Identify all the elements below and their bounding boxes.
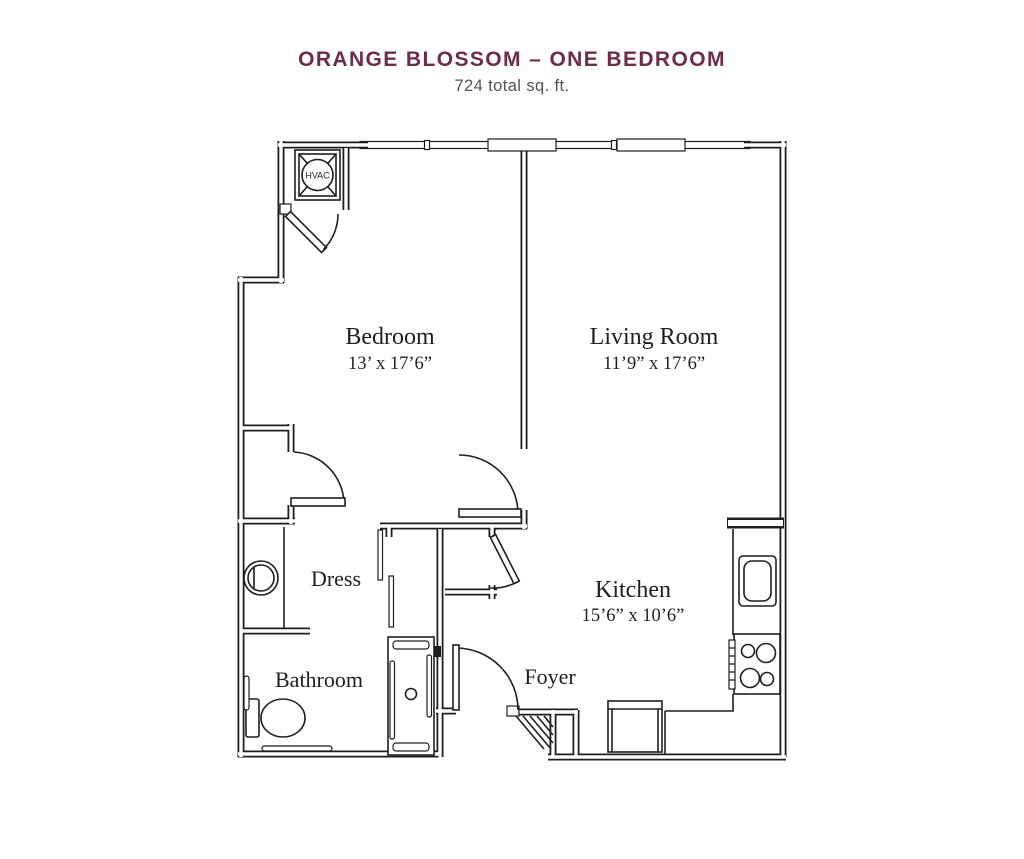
shower-ledge [393,641,429,649]
toilet [246,699,305,737]
floor-plan-svg: ORANGE BLOSSOM – ONE BEDROOM 724 total s… [0,0,1024,859]
burner [757,644,776,663]
hvac-door-arc [323,214,338,249]
bedroom-door-leaf [459,509,521,517]
floor-plan-page: ORANGE BLOSSOM – ONE BEDROOM 724 total s… [0,0,1024,859]
sliding-doors [378,530,394,627]
grab-bar [427,655,432,717]
dress-label: Dress [311,566,361,591]
counter-edge [665,529,733,754]
grab-bar [390,661,395,739]
page-subtitle: 724 total sq. ft. [454,77,569,95]
entry-door-leaf [453,645,459,710]
hvac-closet: HVAC [286,150,340,253]
kitchen-sink [739,556,776,606]
hvac-door-leaf [286,212,327,253]
entry-door-arc [456,648,518,710]
grab-bar [262,746,332,751]
toilet-bowl [261,699,305,737]
window-mullion [612,141,617,150]
washer-door-outer [244,561,278,595]
kitchen-dims: 15’6” x 10’6” [582,606,685,626]
burner [741,669,760,688]
sliding-door-panel [378,530,383,580]
window-mullion [425,141,430,150]
sliding-door-panel [389,576,394,627]
bathroom-label: Bathroom [275,667,363,692]
foyer-label: Foyer [524,664,576,689]
foyer-closet-door-leaf [490,535,519,584]
washer [244,561,278,595]
burner [761,673,774,686]
stove [729,634,780,694]
grab-bar [244,676,249,710]
refrigerator [608,701,662,752]
burner [742,645,755,658]
wall-pier [617,139,685,151]
shower-ledge [393,743,429,751]
wall-pier [488,139,556,151]
bedroom-label: Bedroom [345,324,435,350]
closet-door-arc [294,452,344,502]
walls [238,139,786,757]
shower [388,637,434,755]
bedroom-door-arc [459,455,518,514]
living-room-dims: 11’9” x 17’6” [603,354,705,374]
hvac-label: HVAC [305,171,330,181]
living-room-label: Living Room [590,324,719,350]
page-title: ORANGE BLOSSOM – ONE BEDROOM [298,48,726,71]
closet-door-leaf [291,498,345,506]
wall-outline [238,141,786,757]
kitchen-label: Kitchen [595,577,671,603]
bedroom-dims: 13’ x 17’6” [348,354,432,374]
wall-core [238,141,786,757]
threshold-hatch [516,716,553,749]
